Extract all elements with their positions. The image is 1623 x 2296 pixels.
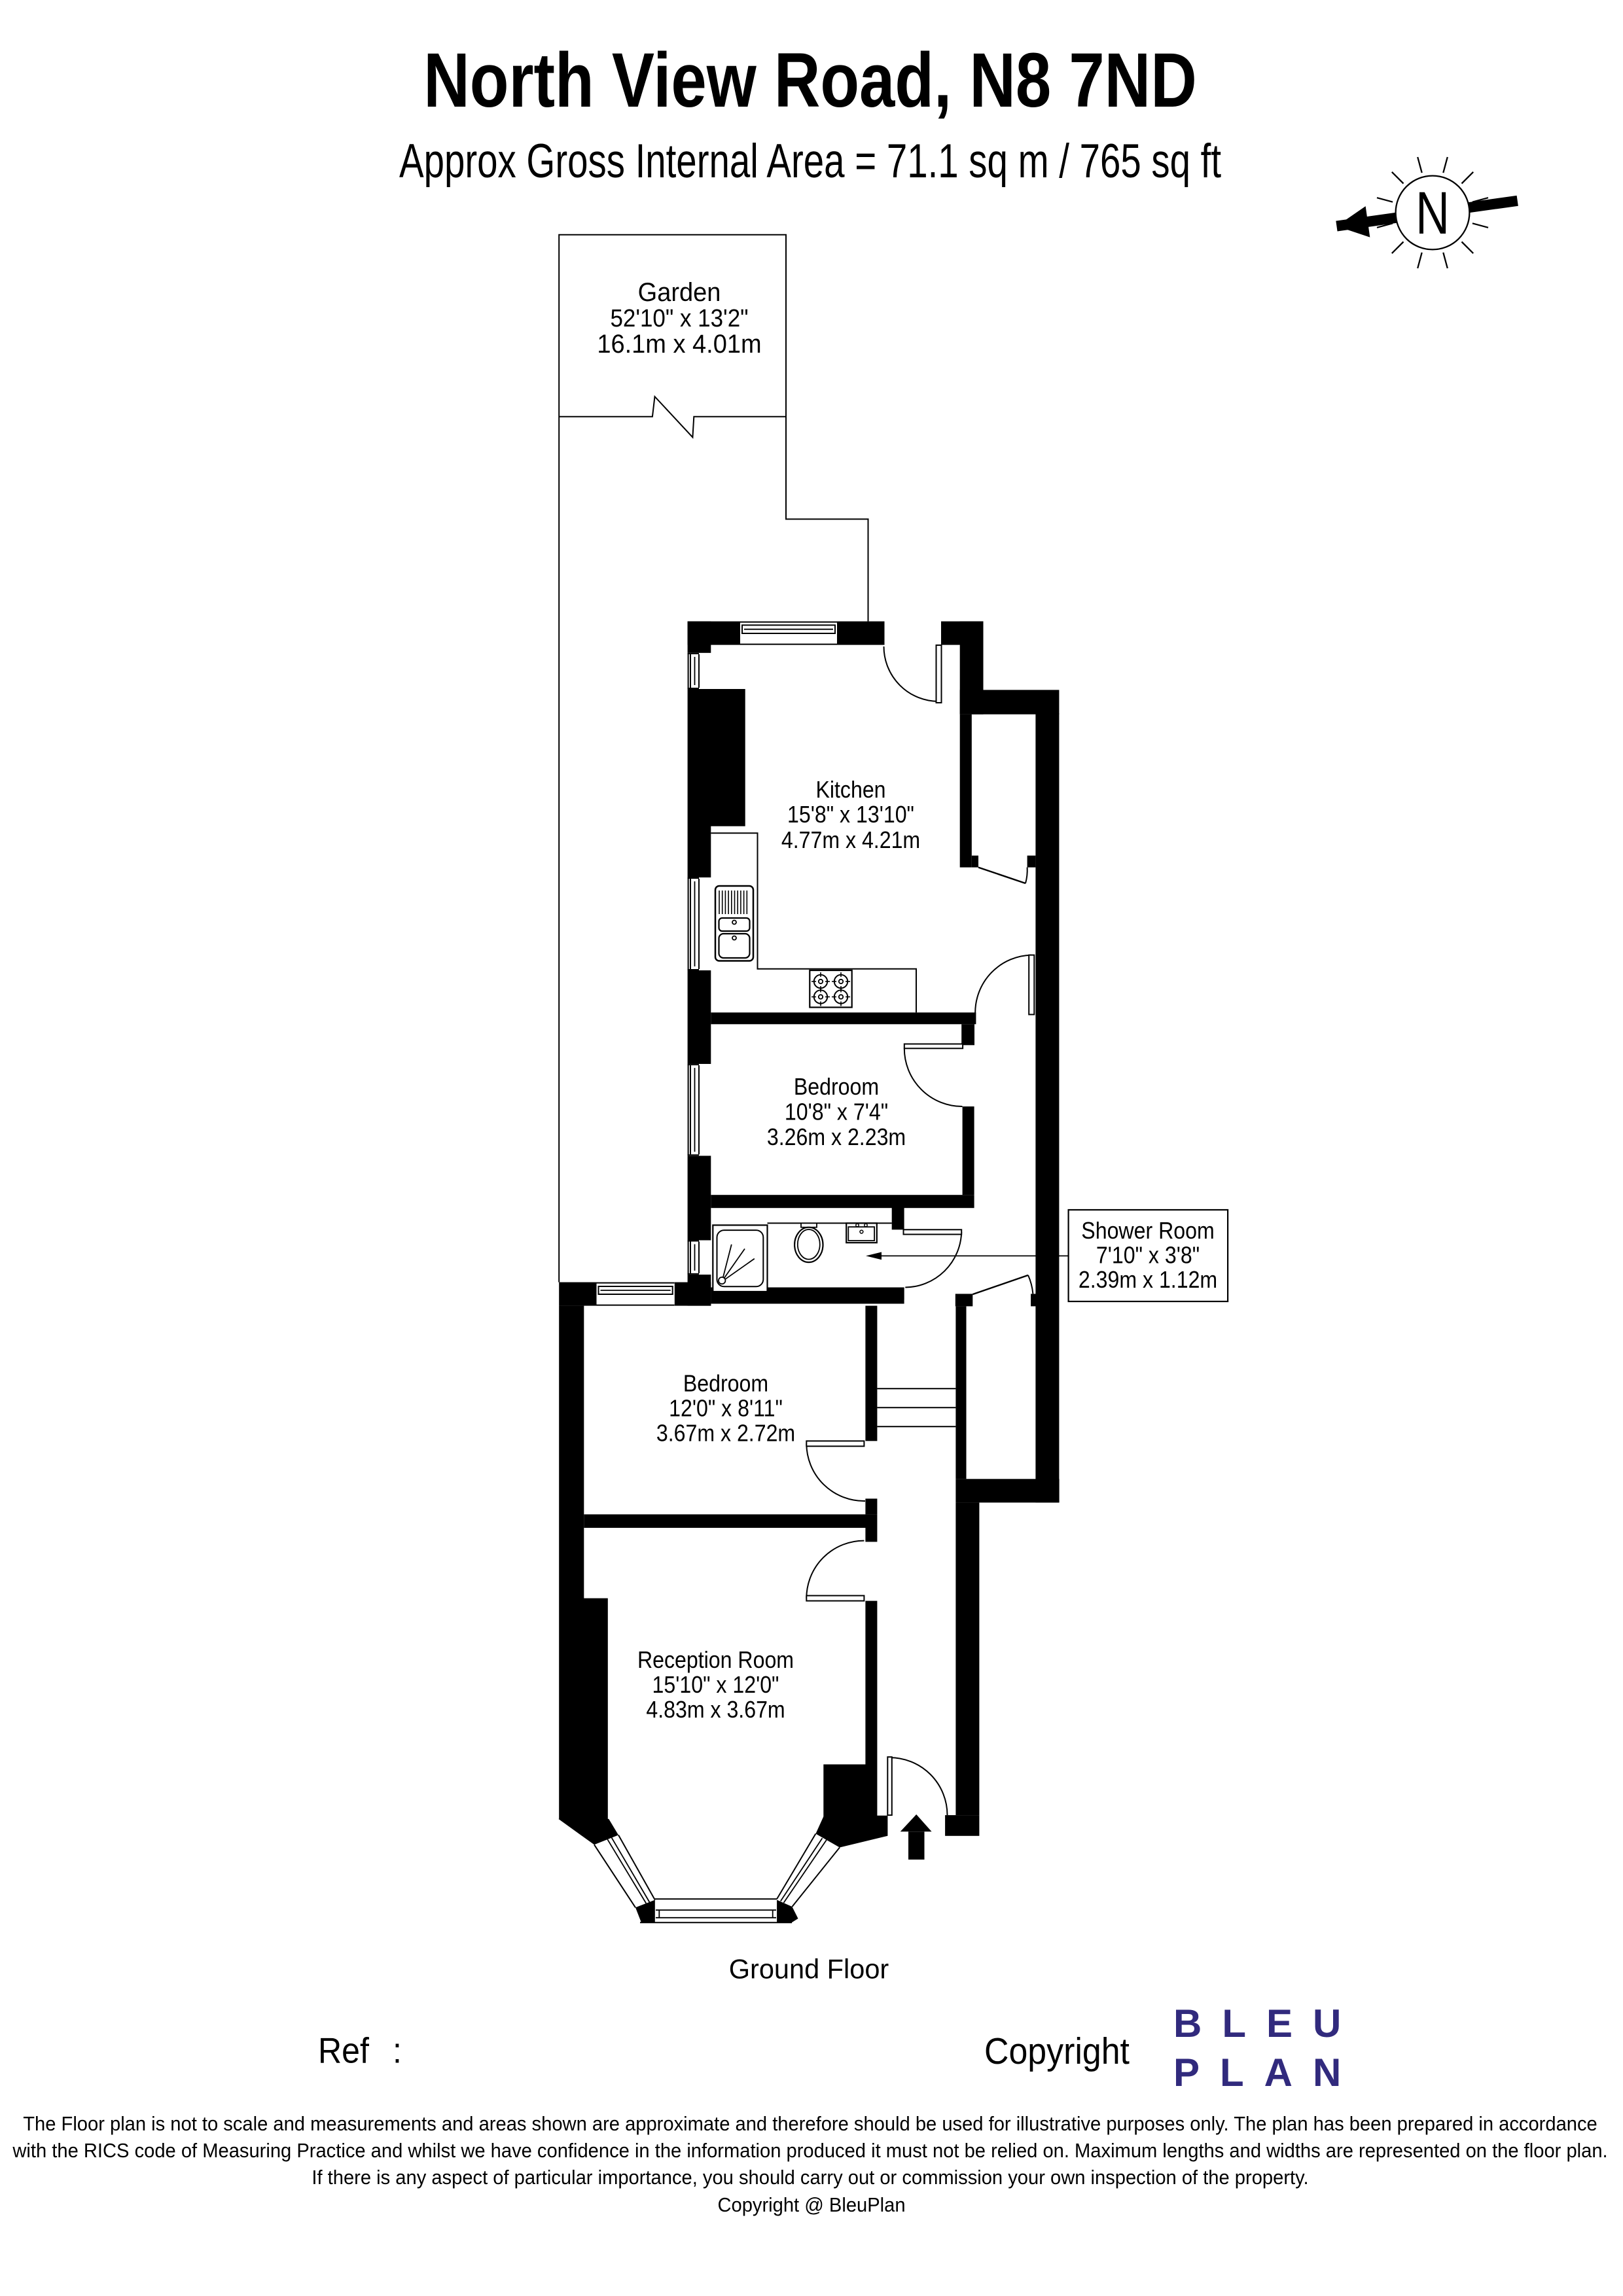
svg-text:N: N xyxy=(1416,179,1450,247)
svg-text:The Floor plan is not to scale: The Floor plan is not to scale and measu… xyxy=(23,2113,1597,2135)
svg-text:PLAN: PLAN xyxy=(1173,2051,1361,2094)
svg-text:Bedroom: Bedroom xyxy=(683,1371,768,1397)
svg-text:52'10" x 13'2": 52'10" x 13'2" xyxy=(610,304,748,332)
svg-text:2.39m x 1.12m: 2.39m x 1.12m xyxy=(1079,1267,1217,1293)
svg-text:Kitchen: Kitchen xyxy=(815,777,885,803)
svg-text:4.83m x 3.67m: 4.83m x 3.67m xyxy=(646,1697,785,1723)
svg-text::: : xyxy=(393,2031,402,2072)
svg-text:Approx Gross Internal Area = 7: Approx Gross Internal Area = 71.1 sq m /… xyxy=(399,134,1221,188)
svg-text:Copyright: Copyright xyxy=(984,2030,1130,2072)
svg-text:Shower Room: Shower Room xyxy=(1081,1218,1214,1244)
svg-text:12'0" x 8'11": 12'0" x 8'11" xyxy=(669,1396,783,1422)
svg-text:Reception Room: Reception Room xyxy=(637,1647,794,1673)
svg-text:Garden: Garden xyxy=(638,278,721,307)
svg-text:Ref: Ref xyxy=(318,2031,369,2072)
svg-text:15'8" x 13'10": 15'8" x 13'10" xyxy=(787,802,914,828)
svg-text:Ground Floor: Ground Floor xyxy=(729,1953,889,1984)
svg-text:10'8" x 7'4": 10'8" x 7'4" xyxy=(785,1099,888,1125)
svg-text:North View Road, N8 7ND: North View Road, N8 7ND xyxy=(423,37,1197,123)
svg-text:15'10" x 12'0": 15'10" x 12'0" xyxy=(652,1672,779,1698)
svg-text:3.26m x 2.23m: 3.26m x 2.23m xyxy=(767,1124,906,1150)
svg-text:16.1m x 4.01m: 16.1m x 4.01m xyxy=(597,330,761,359)
svg-text:BLEU: BLEU xyxy=(1173,2002,1361,2045)
svg-text:4.77m x 4.21m: 4.77m x 4.21m xyxy=(781,827,920,853)
svg-text:Copyright @ BleuPlan: Copyright @ BleuPlan xyxy=(717,2194,905,2216)
svg-text:3.67m x 2.72m: 3.67m x 2.72m xyxy=(656,1421,795,1447)
svg-text:Bedroom: Bedroom xyxy=(794,1074,879,1100)
svg-text:If there is any aspect of part: If there is any aspect of particular imp… xyxy=(312,2166,1308,2189)
svg-text:7'10" x 3'8": 7'10" x 3'8" xyxy=(1096,1243,1200,1269)
svg-text:with the RICS code of Measurin: with the RICS code of Measuring Practice… xyxy=(12,2140,1607,2162)
